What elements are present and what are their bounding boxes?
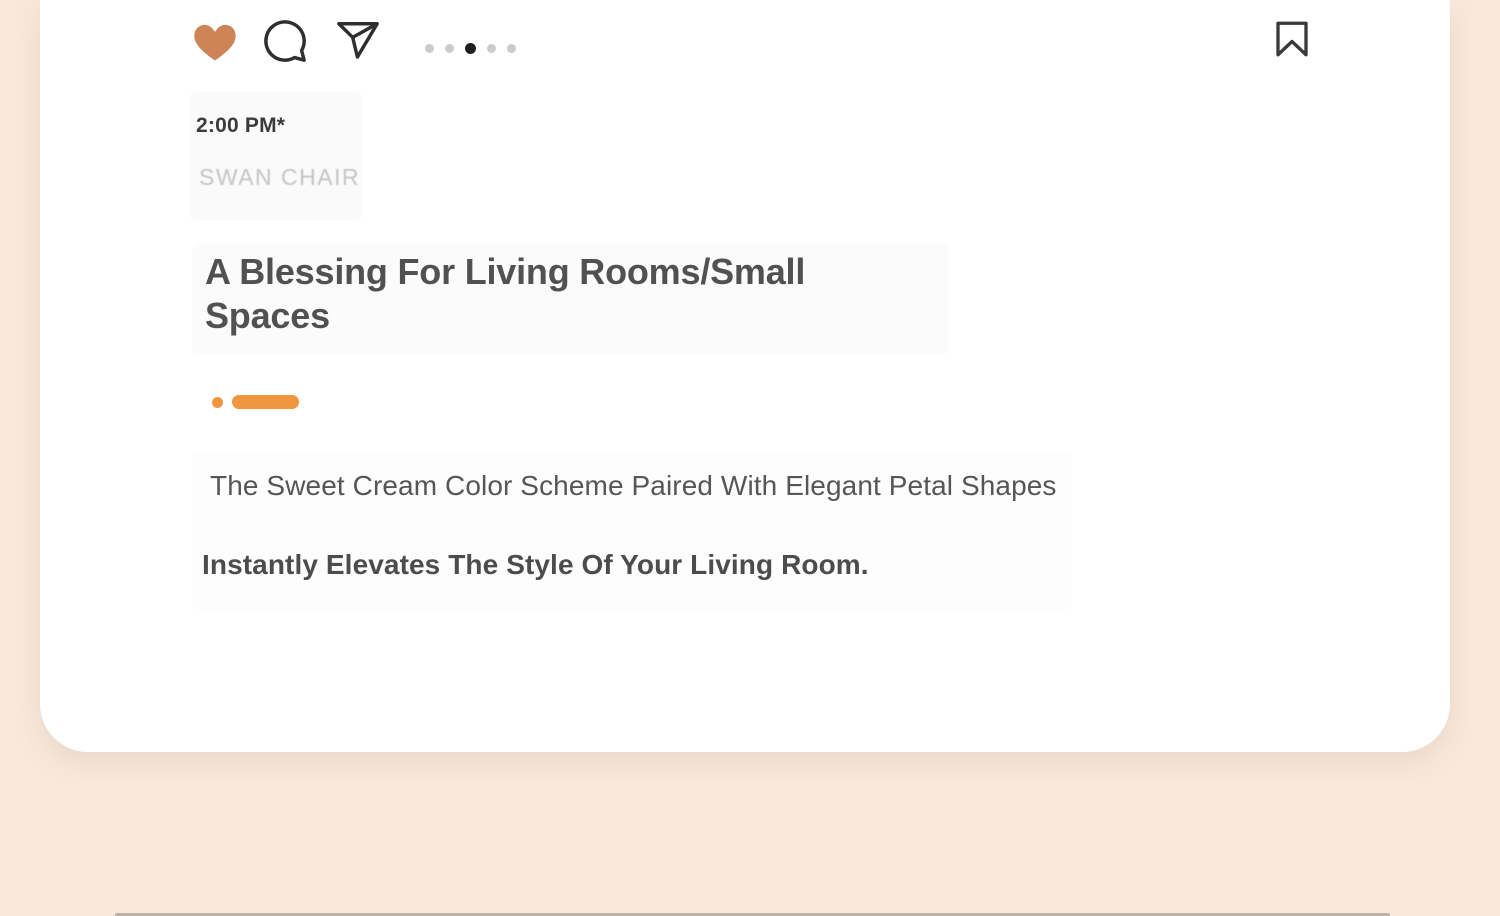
like-button[interactable] [188, 12, 242, 70]
post-body-line-2: Instantly Elevates The Style Of Your Liv… [202, 549, 869, 581]
carousel-dot [507, 44, 516, 53]
carousel-dots[interactable] [425, 42, 516, 54]
save-button[interactable] [1268, 12, 1316, 66]
brand-name: SWAN CHAIR [199, 164, 360, 191]
heart-filled-icon [190, 16, 240, 66]
image-artifact [190, 92, 362, 220]
carousel-dot [445, 44, 454, 53]
post-body-line-1: The Sweet Cream Color Scheme Paired With… [210, 470, 1057, 502]
post-title: A Blessing For Living Rooms/Small Spaces [205, 250, 935, 338]
share-button[interactable] [333, 16, 383, 66]
screenshot-stage: 2:00 PM* SWAN CHAIR A Blessing For Livin… [0, 0, 1500, 916]
post-card: 2:00 PM* SWAN CHAIR A Blessing For Livin… [40, 0, 1450, 752]
divider-dot [212, 397, 223, 408]
carousel-dot [425, 44, 434, 53]
carousel-dot [465, 43, 476, 54]
comment-button[interactable] [260, 16, 310, 66]
post-time: 2:00 PM* [196, 114, 285, 138]
paper-plane-icon [335, 18, 381, 64]
bookmark-icon [1271, 15, 1313, 63]
divider-pill [232, 395, 299, 409]
comment-bubble-icon [262, 18, 308, 64]
carousel-dot [487, 44, 496, 53]
accent-divider [212, 395, 299, 409]
